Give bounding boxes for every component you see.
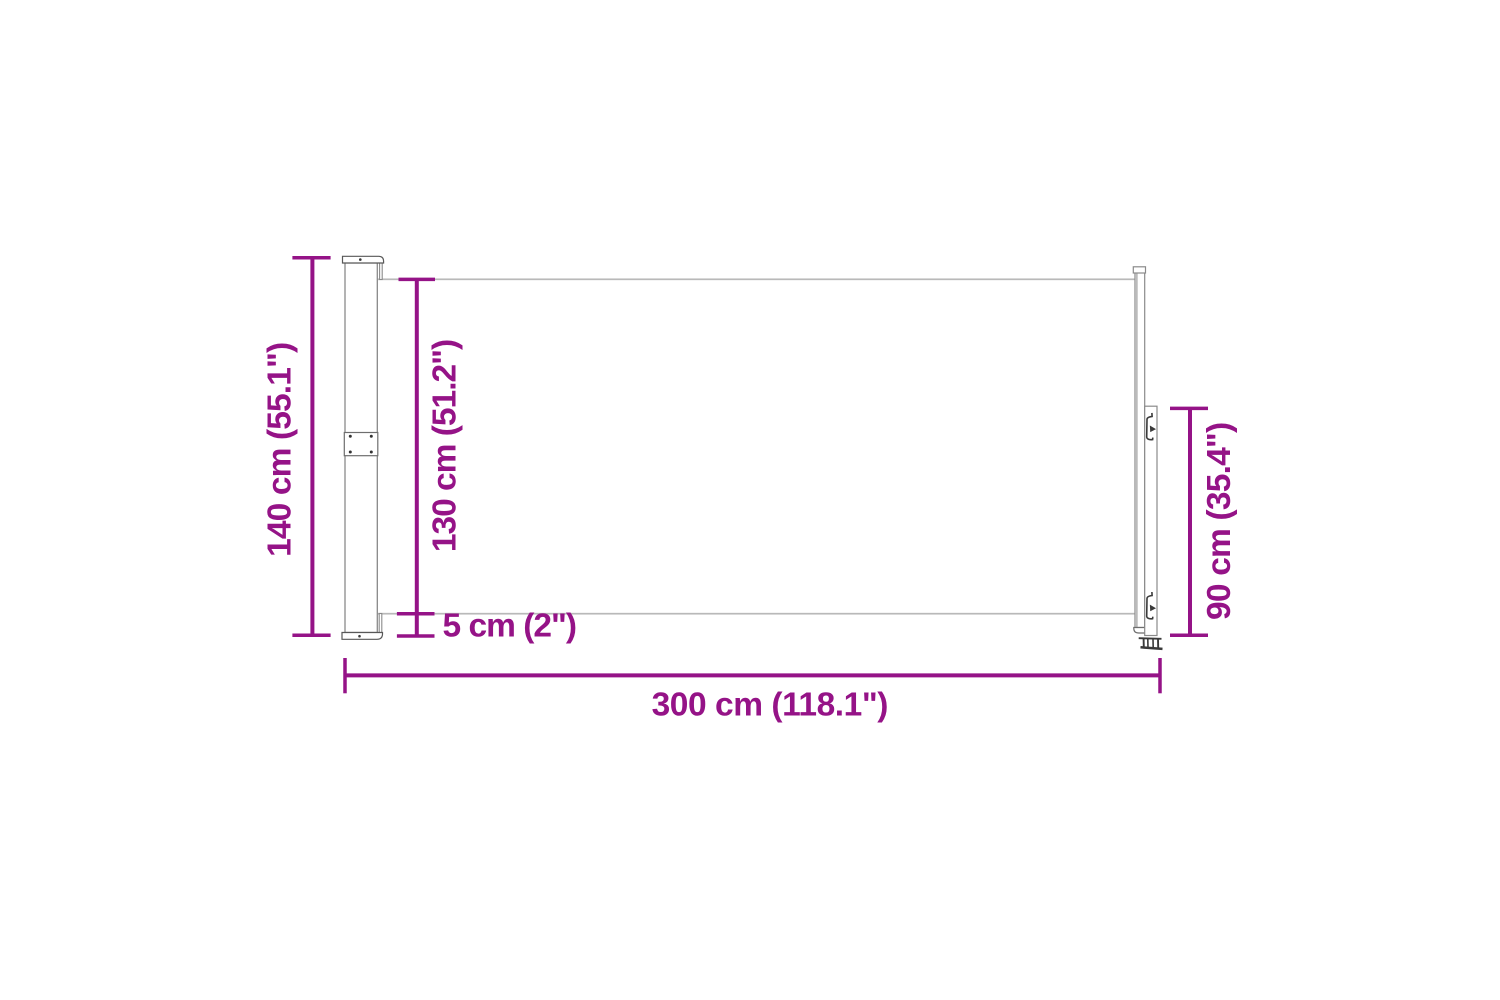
- svg-text:90 cm (35.4"): 90 cm (35.4"): [1201, 423, 1238, 620]
- svg-text:130 cm (51.2"): 130 cm (51.2"): [426, 340, 463, 552]
- svg-text:140 cm (55.1"): 140 cm (55.1"): [261, 343, 298, 557]
- svg-text:300 cm (118.1"): 300 cm (118.1"): [652, 687, 888, 724]
- svg-text:5 cm (2"): 5 cm (2"): [443, 607, 577, 644]
